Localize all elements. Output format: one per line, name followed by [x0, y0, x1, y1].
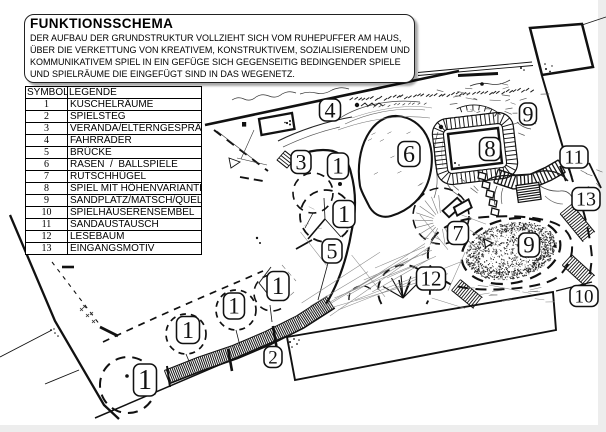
- svg-text:10: 10: [575, 286, 594, 307]
- svg-text:1: 1: [332, 154, 344, 179]
- svg-text:13: 13: [576, 189, 596, 211]
- svg-text:11: 11: [564, 147, 583, 169]
- svg-text:12: 12: [421, 266, 442, 290]
- svg-text:4: 4: [325, 97, 336, 122]
- svg-text:7: 7: [453, 220, 464, 245]
- svg-text:1: 1: [182, 318, 194, 344]
- svg-text:1: 1: [138, 365, 152, 396]
- svg-text:2: 2: [268, 347, 278, 368]
- svg-text:8: 8: [484, 137, 496, 162]
- svg-text:9: 9: [523, 101, 534, 126]
- svg-text:1: 1: [338, 202, 350, 228]
- svg-text:5: 5: [327, 238, 338, 263]
- svg-text:3: 3: [296, 149, 307, 174]
- svg-text:1: 1: [228, 294, 240, 319]
- svg-text:6: 6: [403, 142, 415, 168]
- svg-text:9: 9: [523, 233, 535, 258]
- svg-text:1: 1: [272, 273, 285, 300]
